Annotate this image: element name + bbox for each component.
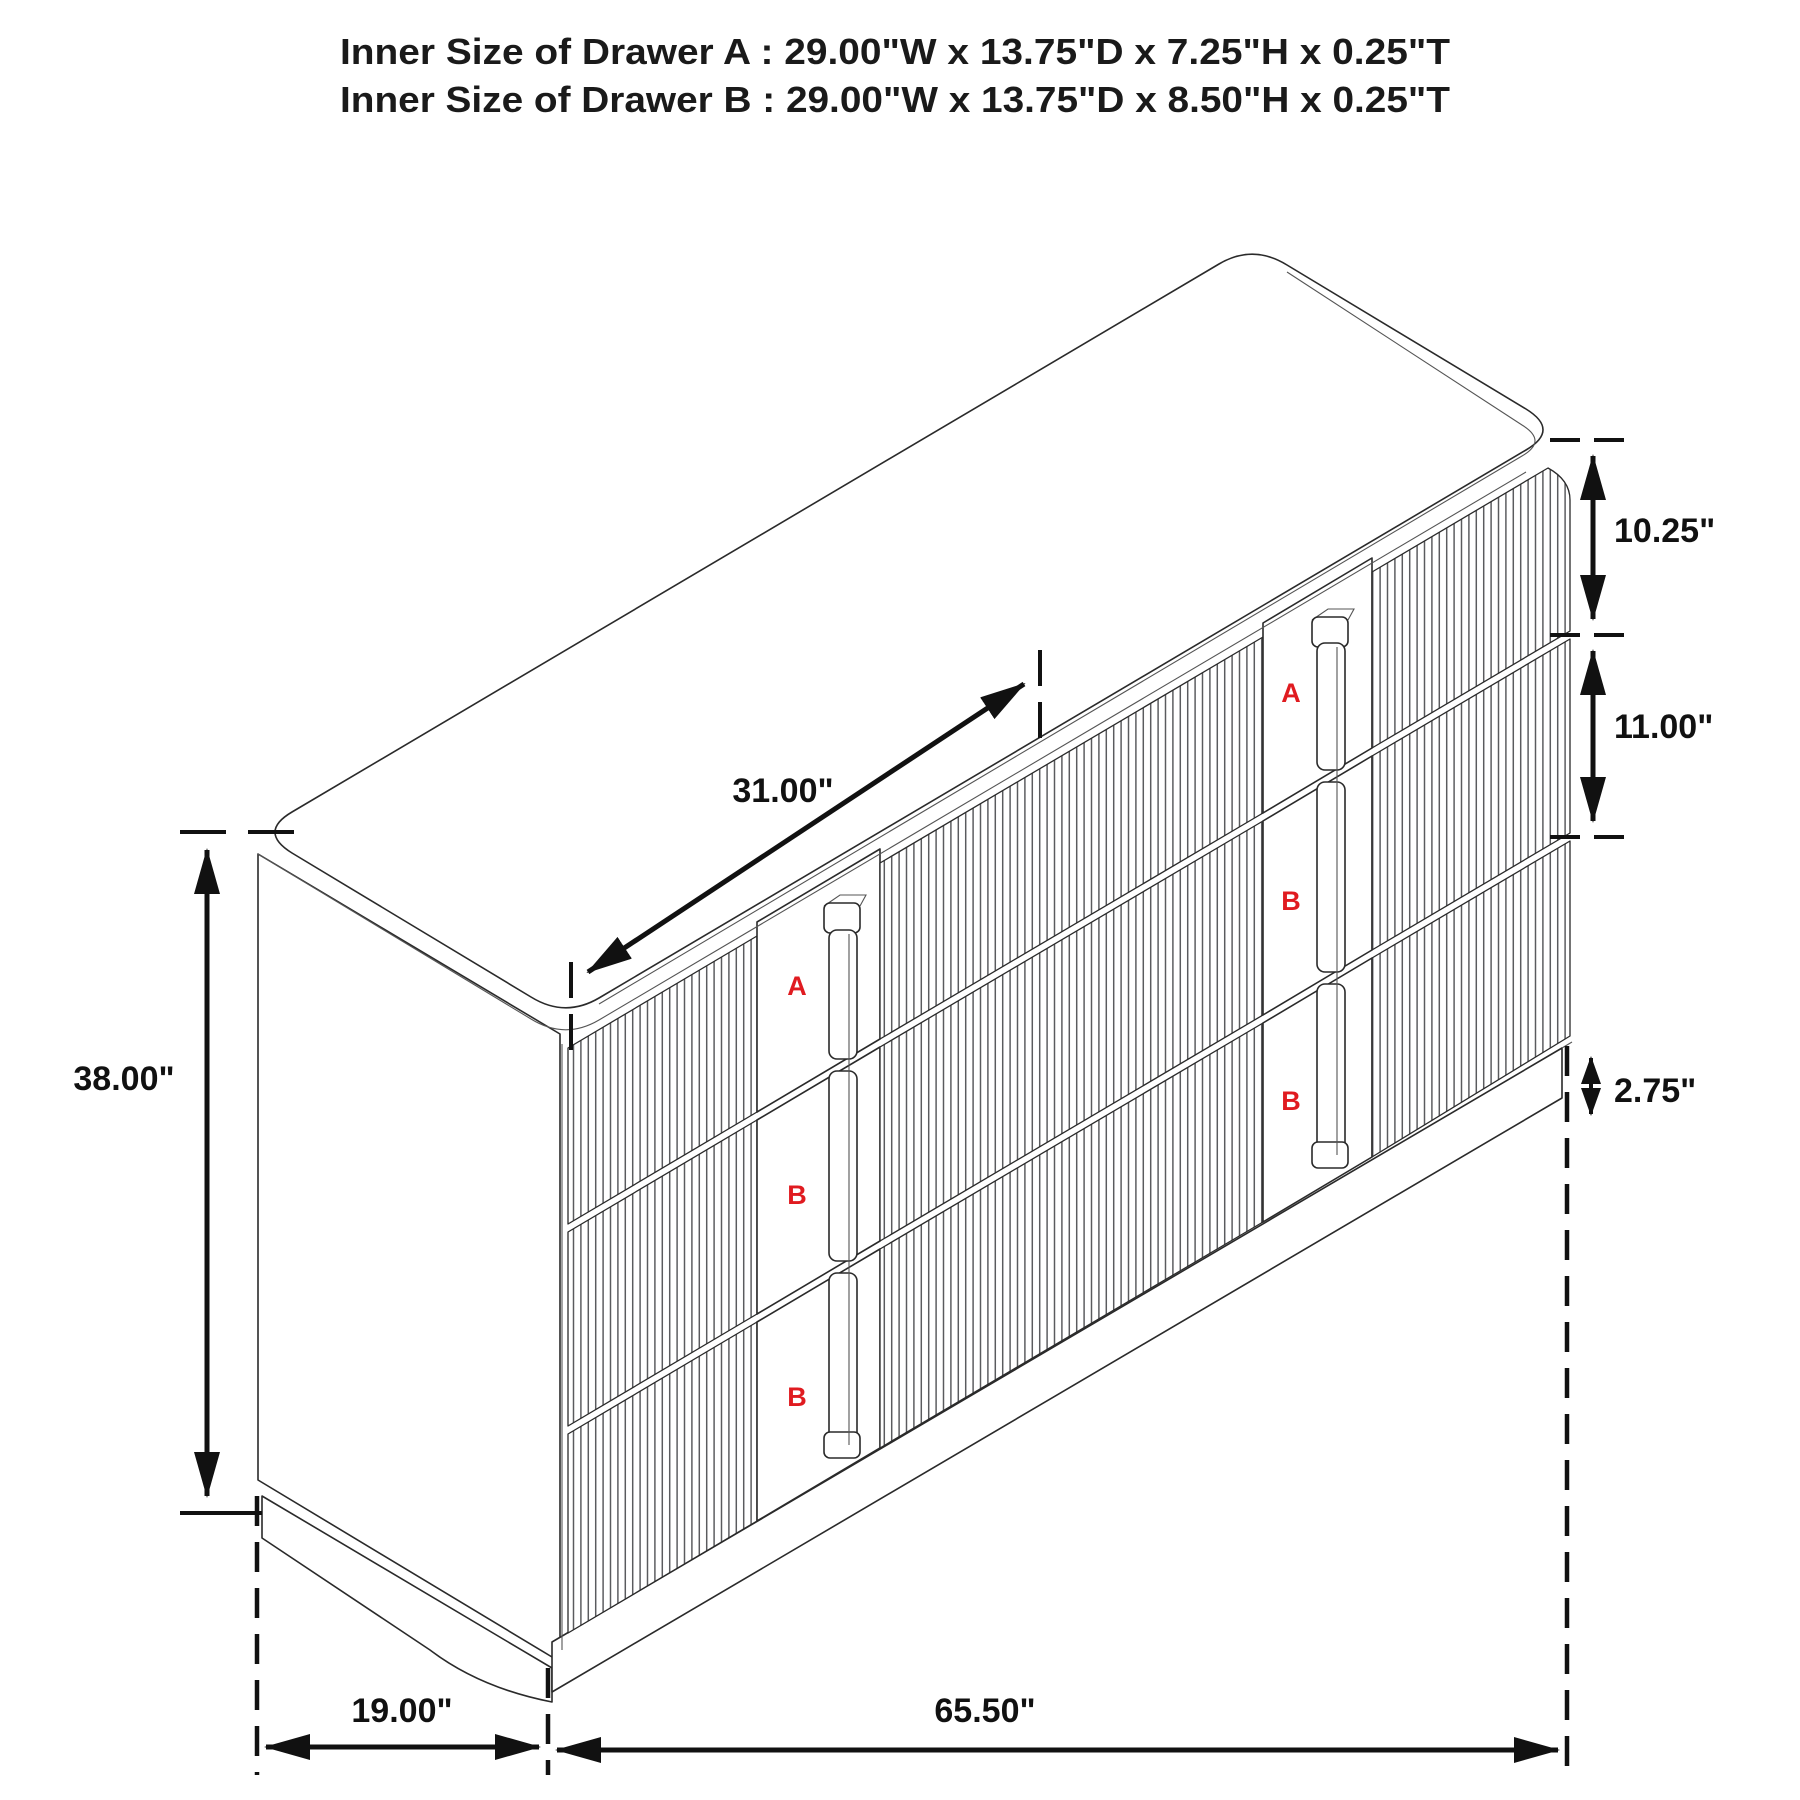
drawer-label-right-b2: B [1281,1086,1301,1116]
drawer-column-left [757,849,880,1521]
handle-bar-segment [1317,782,1345,972]
drawer-label-right-a: A [1281,678,1301,708]
handle-bar-segment [1317,984,1345,1160]
drawer-label-left-b2: B [787,1382,807,1412]
dim-drawer-a-height: 10.25" [1550,440,1715,635]
dimension-label-base-height: 2.75" [1614,1072,1696,1110]
handle-foot [1312,1142,1348,1168]
dimension-label-overall-width: 65.50" [934,1692,1035,1730]
furniture-dimension-diagram: Inner Size of Drawer A : 29.00"W x 13.75… [0,0,1800,1800]
drawer-label-left-b1: B [787,1180,807,1210]
dimension-label-drawer-a-height: 10.25" [1614,512,1715,550]
dim-base-height: 2.75" [1591,1058,1696,1114]
handle-cap [824,903,860,933]
dimension-label-depth: 19.00" [351,1692,452,1730]
fluted-section-right [1372,468,1570,1157]
dimension-label-overall-height: 38.00" [73,1060,174,1098]
title-line-drawer-b: Inner Size of Drawer B : 29.00"W x 13.75… [340,79,1450,120]
drawer-label-right-b1: B [1281,886,1301,916]
cabinet-drawing: A B B A B B [258,254,1572,1702]
handle-bar-segment [829,930,857,1059]
dimension-label-top-drawer-width: 31.00" [732,772,833,810]
fluted-section-left [568,936,757,1633]
handle-bar-segment [829,1071,857,1261]
drawer-label-left-a: A [787,971,807,1001]
handle-foot [824,1432,860,1458]
handle-bar-segment [829,1273,857,1449]
dim-drawer-b-height: 11.00" [1550,651,1713,837]
dimension-label-drawer-b-height: 11.00" [1614,708,1713,746]
handle-bar-segment [1317,643,1345,770]
title-line-drawer-a: Inner Size of Drawer A : 29.00"W x 13.75… [340,31,1450,72]
